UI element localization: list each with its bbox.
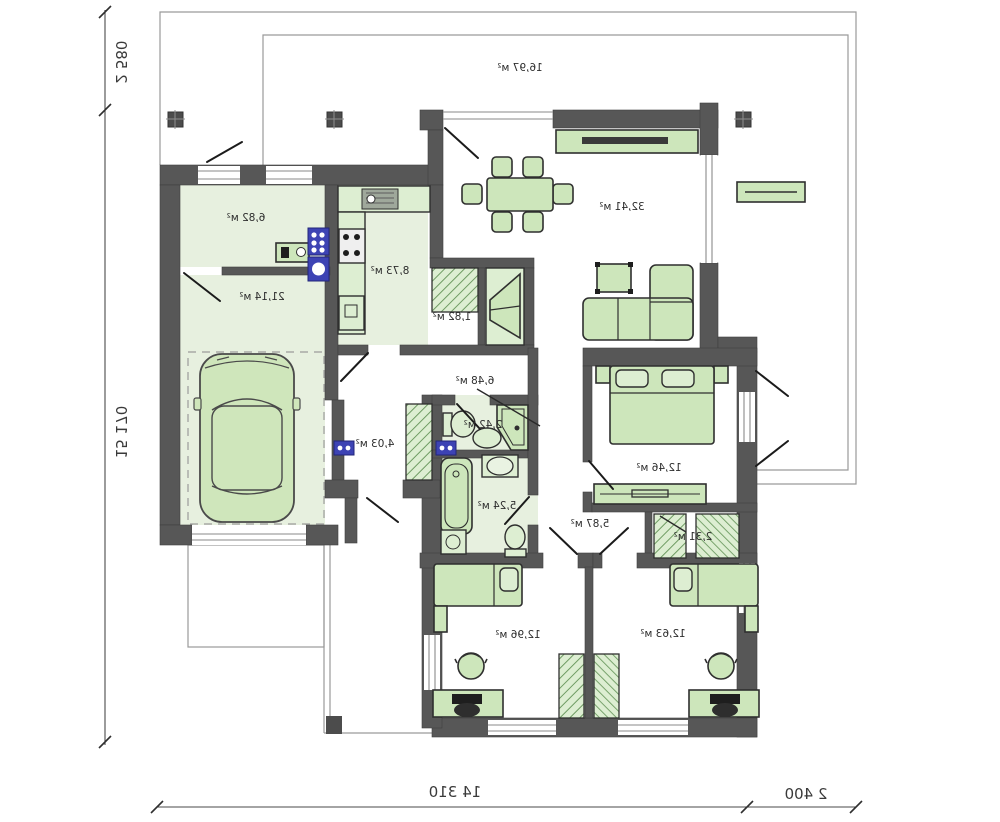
hall-wardrobe	[406, 404, 432, 480]
wall-segment	[428, 130, 443, 185]
washing-machine-icon	[308, 228, 329, 255]
wall-segment	[345, 498, 357, 543]
room-label-closet: 2,31 м²	[674, 531, 713, 543]
desk	[433, 690, 503, 717]
tv-icon	[582, 137, 668, 144]
driveway	[188, 545, 324, 647]
pantry-shelves	[432, 268, 478, 312]
bedroom-wardrobe	[559, 654, 584, 718]
entry-closet	[486, 268, 524, 345]
wall-segment	[585, 567, 593, 718]
wall-segment	[478, 268, 485, 345]
wall-segment	[583, 492, 592, 512]
wall-segment	[403, 480, 440, 498]
terrace-bench	[737, 182, 805, 202]
window	[618, 720, 688, 735]
wall-segment	[700, 263, 718, 352]
double-bed	[596, 366, 728, 444]
room-label-inner-hall: 5,87 м²	[571, 518, 610, 530]
wall-segment	[430, 258, 534, 268]
room-label-utility: 6,82 м²	[227, 212, 266, 224]
bedroom-wardrobe	[594, 654, 619, 718]
wall-segment	[420, 110, 443, 130]
wall-segment	[524, 268, 534, 345]
room-label-bathroom: 5,24 м²	[478, 500, 517, 512]
room-label-bedroom-3: 12,63 м²	[640, 628, 686, 640]
wall-segment	[306, 525, 338, 545]
wall-segment	[430, 185, 443, 258]
room-label-bedroom-1: 12,46 м²	[636, 462, 682, 474]
dimension-label-bottom-main: 14 310	[429, 783, 482, 801]
pillow	[500, 568, 518, 591]
window	[488, 720, 556, 735]
utility-counter	[276, 243, 309, 262]
window	[424, 635, 440, 690]
dryer-icon	[308, 257, 329, 281]
floor-plan-canvas: 16,97 м² 6,82 м² 21,14 м² 8,73 м² 1,82 м…	[0, 0, 1000, 822]
wall-segment	[325, 185, 338, 400]
room-label-kitchen: 8,73 м²	[371, 265, 410, 277]
pillow	[662, 370, 694, 387]
pillow	[674, 568, 692, 591]
dimension-label-left-main: 15 170	[112, 406, 130, 459]
room-label-hallway: 6,48 м²	[456, 375, 495, 387]
car	[194, 354, 300, 522]
wall-segment	[553, 110, 718, 128]
dimension-label-bottom-right: 2 400	[785, 785, 828, 803]
bath-sink-icon	[482, 455, 518, 477]
column-icon	[325, 110, 344, 129]
room-label-wc: 2,42 м²	[464, 419, 503, 431]
dining-table	[487, 178, 553, 211]
hall-washer-icon	[334, 441, 354, 455]
room-label-garage: 21,14 м²	[239, 291, 285, 303]
wall-segment	[160, 525, 192, 545]
kitchen-appliance	[339, 296, 364, 330]
wall-segment	[332, 400, 344, 480]
wall-segment	[325, 480, 358, 498]
bath-toilet-icon	[505, 525, 526, 557]
faucet-icon	[367, 195, 375, 203]
room-label-pantry: 1,82 м²	[433, 311, 472, 323]
wall-segment	[593, 553, 602, 568]
window	[266, 166, 312, 184]
wall-segment	[432, 395, 455, 405]
window	[198, 166, 240, 184]
column-icon	[166, 110, 185, 129]
wc-washer-icon	[436, 441, 456, 455]
wall-segment	[432, 718, 757, 737]
wall-segment	[583, 348, 757, 366]
wall-segment	[400, 345, 534, 355]
column-icon	[734, 110, 753, 129]
desk	[689, 690, 759, 717]
window	[701, 155, 717, 263]
wall-segment	[338, 345, 368, 355]
window	[739, 392, 755, 442]
bathtub-icon	[441, 458, 472, 534]
coffee-table	[595, 262, 633, 294]
pillow	[616, 370, 648, 387]
wc-sink-icon	[473, 428, 501, 448]
boiler-icon	[441, 530, 466, 554]
porch-post	[326, 716, 342, 734]
wall-segment	[578, 553, 593, 568]
tv-cabinet	[556, 130, 698, 153]
room-label-terrace: 16,97 м²	[497, 62, 543, 74]
room-label-bedroom-2: 12,96 м²	[495, 629, 541, 641]
room-label-living: 32,41 м²	[599, 201, 645, 213]
garage-door	[192, 525, 306, 545]
room-label-entrance: 4,03 м²	[356, 438, 395, 450]
stove	[339, 229, 365, 263]
dimension-label-left-top: 2 580	[112, 41, 130, 84]
wall-segment	[160, 185, 180, 525]
floor-plan-page: 16,97 м² 6,82 м² 21,14 м² 8,73 м² 1,82 м…	[0, 0, 1000, 822]
wall-segment	[583, 366, 592, 462]
wall-segment	[700, 103, 718, 155]
